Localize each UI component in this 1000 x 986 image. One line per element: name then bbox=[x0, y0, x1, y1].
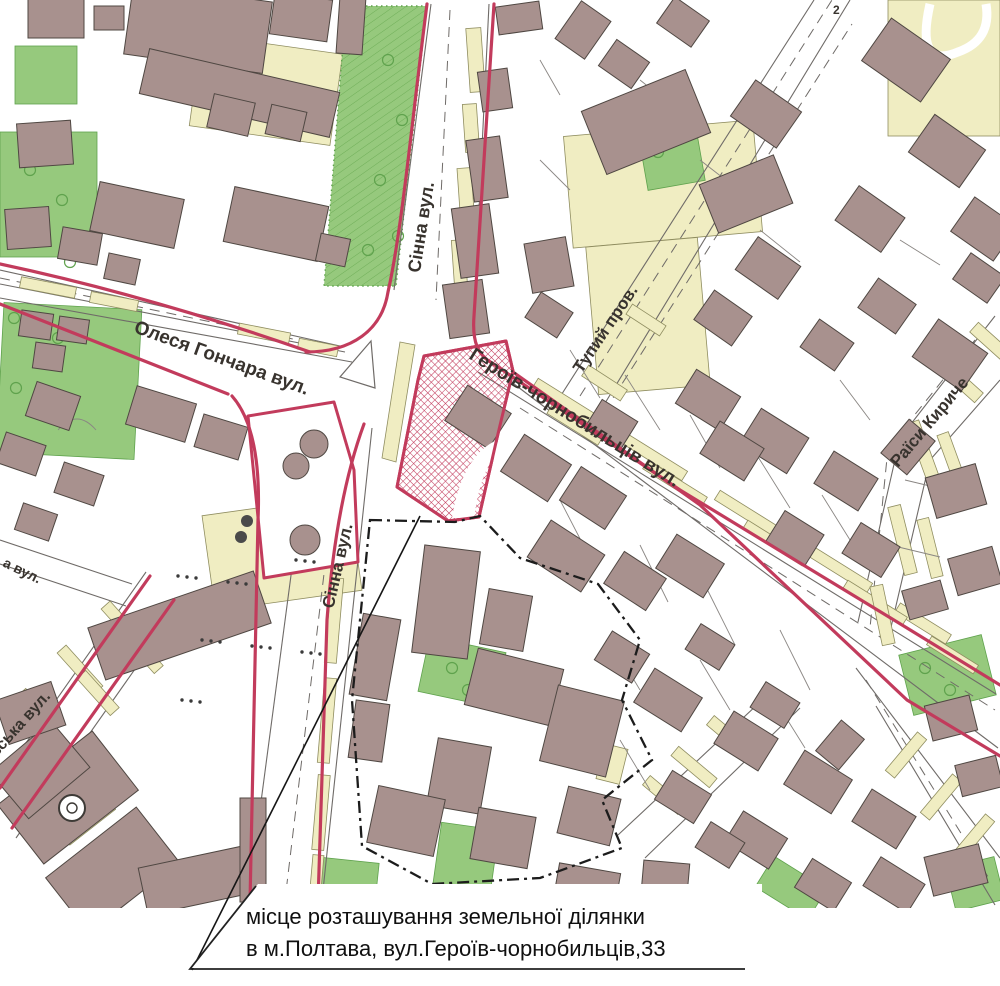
round-court-feature bbox=[59, 795, 85, 821]
map-stage: місце розташування земельної ділянки в м… bbox=[0, 0, 1000, 986]
map-corner-mark: 2 bbox=[833, 3, 840, 17]
city-plan-map: місце розташування земельної ділянки в м… bbox=[0, 0, 1000, 986]
caption-line-1: місце розташування земельної ділянки bbox=[246, 904, 645, 929]
caption-line-2: в м.Полтава, вул.Героїв-чорнобильців,33 bbox=[246, 936, 666, 961]
caption-box: місце розташування земельної ділянки в м… bbox=[190, 884, 762, 969]
small-tank bbox=[235, 531, 247, 543]
small-tank bbox=[241, 515, 253, 527]
